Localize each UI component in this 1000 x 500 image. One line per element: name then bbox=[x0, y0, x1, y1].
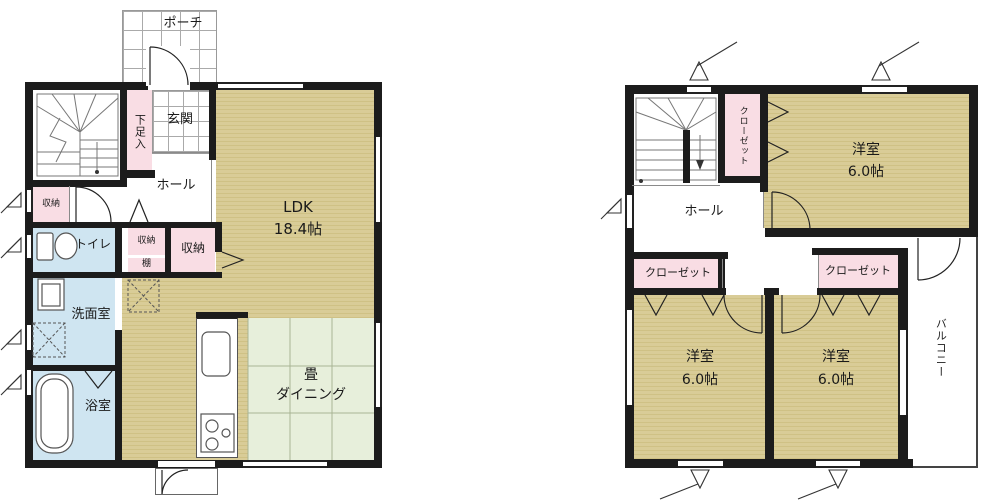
stairs-railing-line bbox=[632, 185, 720, 186]
stairs-floor2 bbox=[632, 94, 720, 185]
tatami-label-1: 畳 bbox=[271, 366, 351, 384]
wall-segment bbox=[115, 330, 122, 460]
wall-segment bbox=[718, 85, 725, 183]
closet-opening-line bbox=[722, 259, 723, 288]
storage-b-label: 収納 bbox=[128, 233, 165, 249]
wall-segment bbox=[625, 288, 726, 295]
window bbox=[862, 85, 907, 94]
wall-segment bbox=[209, 82, 216, 160]
wall-segment bbox=[25, 222, 222, 228]
balcony-label: バルコニー bbox=[928, 290, 952, 405]
shelf-label: 棚 bbox=[128, 258, 165, 271]
wall-segment bbox=[625, 459, 913, 468]
wall-segment bbox=[115, 272, 222, 278]
window bbox=[678, 459, 723, 468]
storage-a-label: 収納 bbox=[33, 196, 69, 212]
ldk-size-label: 18.4帖 bbox=[258, 220, 338, 240]
bedroom-left-name-label: 洋室 bbox=[660, 347, 740, 367]
entrance-label: 玄関 bbox=[150, 110, 210, 130]
storage-divider-line bbox=[69, 186, 70, 222]
wall-segment bbox=[898, 415, 908, 460]
closet-upper-label: クローゼット bbox=[731, 98, 754, 174]
wall-segment bbox=[812, 248, 908, 255]
floorplan-canvas: ポーチ 玄関 下足入 ホール 収納 トイレ 収納 棚 収納 洗面室 浴室 LDK… bbox=[0, 0, 1000, 500]
wall-segment bbox=[817, 288, 908, 295]
wall-segment bbox=[120, 82, 127, 182]
bedroom-top-name-label: 洋室 bbox=[826, 140, 906, 160]
bedroom-right-name-label: 洋室 bbox=[796, 347, 876, 367]
window-small bbox=[25, 235, 33, 258]
bedroom-top-room bbox=[764, 94, 969, 228]
window bbox=[898, 330, 908, 415]
stairs-floor1 bbox=[33, 90, 120, 180]
window bbox=[218, 82, 303, 90]
window bbox=[816, 459, 860, 468]
window bbox=[374, 137, 382, 222]
wall-segment bbox=[969, 85, 978, 237]
window-small bbox=[687, 85, 711, 94]
window bbox=[625, 195, 634, 228]
front-door-opening bbox=[148, 82, 190, 90]
wall-segment bbox=[765, 228, 978, 237]
window bbox=[625, 310, 634, 405]
closet-right-label: クローゼット bbox=[816, 261, 900, 281]
bedroom-right-size-label: 6.0帖 bbox=[796, 370, 876, 390]
bathroom-label: 浴室 bbox=[70, 398, 126, 416]
wall-segment bbox=[625, 85, 978, 94]
window bbox=[243, 460, 327, 468]
ldk-name-label: LDK bbox=[258, 198, 338, 218]
window-small bbox=[25, 370, 33, 395]
closet-left-label: クローゼット bbox=[634, 263, 722, 283]
shoe-cupboard-label: 下足入 bbox=[128, 95, 150, 169]
hall-label: ホール bbox=[136, 176, 216, 196]
window-small bbox=[25, 190, 33, 212]
bedroom-top-size-label: 6.0帖 bbox=[826, 162, 906, 182]
tatami-label-2: ダイニング bbox=[256, 386, 366, 404]
closet-opening-line bbox=[763, 192, 764, 228]
back-door-step bbox=[155, 468, 218, 495]
wall-segment bbox=[25, 365, 122, 371]
hall2-label: ホール bbox=[664, 202, 744, 222]
bedroom-left-size-label: 6.0帖 bbox=[660, 370, 740, 390]
window bbox=[374, 323, 382, 407]
kitchen-counter bbox=[196, 315, 238, 458]
wall-segment bbox=[760, 85, 768, 192]
wall-segment bbox=[115, 222, 122, 277]
wall-segment bbox=[625, 85, 634, 468]
window-small bbox=[25, 325, 33, 350]
wall-segment bbox=[625, 252, 728, 259]
genkan-step-line bbox=[152, 152, 209, 153]
toilet-label: トイレ bbox=[70, 236, 116, 254]
wall-segment bbox=[25, 180, 127, 187]
wall-segment bbox=[215, 222, 222, 252]
back-door-opening bbox=[158, 461, 215, 467]
wall-segment bbox=[765, 295, 774, 460]
wall-segment bbox=[764, 288, 779, 295]
washroom-label: 洗面室 bbox=[51, 306, 131, 324]
storage-c-label: 収納 bbox=[171, 240, 215, 258]
porch-label: ポーチ bbox=[143, 14, 223, 34]
wall-segment bbox=[25, 82, 382, 90]
wall-segment bbox=[196, 312, 248, 318]
wall-segment bbox=[25, 272, 122, 278]
